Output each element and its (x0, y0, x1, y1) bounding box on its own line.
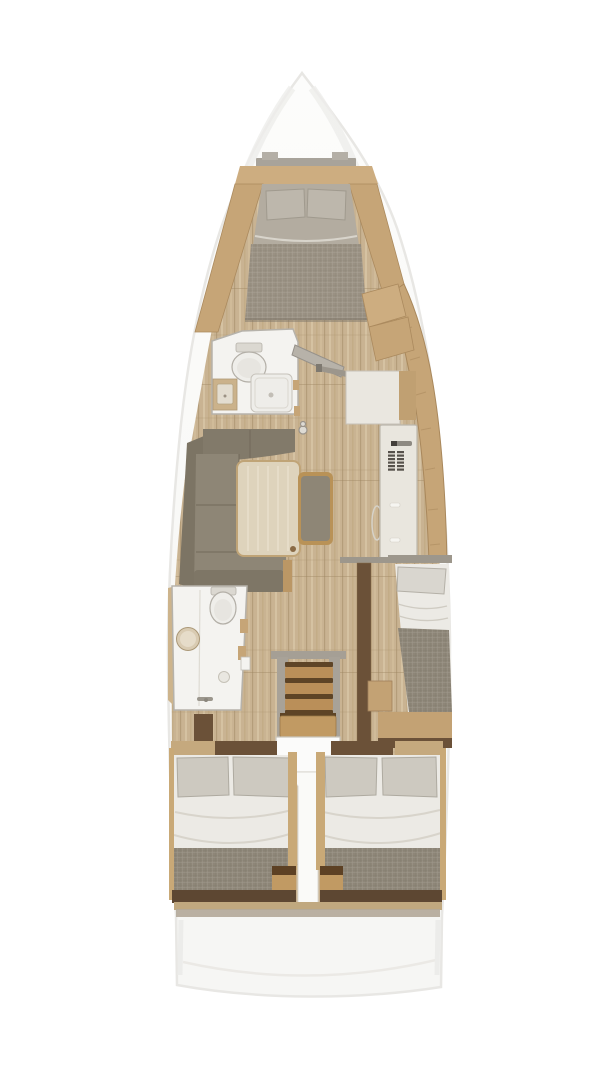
forward-head-door-jamb-2 (294, 406, 300, 416)
port-headboard-band (215, 741, 277, 757)
bow-hatch-tab-port (262, 152, 278, 160)
aft-head (168, 586, 248, 710)
aft-head-faucet-base (204, 698, 208, 702)
starboard-bed-pillow-right (382, 757, 437, 797)
starboard-bed-rail-outboard (440, 748, 446, 900)
stair-steps (285, 662, 333, 715)
starboard-headboard-band (331, 741, 393, 757)
saloon-table-knob (290, 546, 296, 552)
starboard-mid-berth (357, 555, 452, 748)
forward-head-toilet-tank (236, 343, 262, 352)
forward-head-door-jamb-1 (293, 380, 299, 390)
port-bed-pillow-right (233, 757, 292, 797)
saloon-bench-cushion (301, 476, 330, 541)
transom-brown-port (172, 890, 296, 903)
aft-head-door-jamb-1 (240, 619, 248, 633)
mast-fitting-outer (299, 426, 307, 434)
chart-table-side-panel (399, 371, 416, 420)
forward-head-shower-drain (269, 393, 274, 398)
floorplan-canvas (0, 0, 608, 1080)
vberth-pillow-starboard (307, 189, 346, 220)
port-bed-rail-outboard (169, 748, 174, 900)
stern-inner-shadow-starboard (437, 920, 438, 975)
vberth-foot-shadow (245, 318, 367, 322)
chart-table (346, 371, 400, 424)
starboard-cabin-entry-step (368, 681, 392, 711)
port-headboard-wood (171, 741, 215, 757)
bow-hatch-tab-starboard (332, 152, 348, 160)
sofa-aft-wood-cap (283, 560, 292, 592)
starboard-bed-pillow-left (325, 757, 377, 797)
vberth-foot-texture (245, 244, 367, 320)
yacht-floorplan (0, 0, 608, 1080)
port-cabin-door-panel (194, 714, 213, 744)
forward-head-sink (217, 384, 233, 404)
mast-fitting-inner (301, 422, 306, 427)
starboard-cabin-bulkhead (388, 555, 452, 562)
vberth-pillow-port (266, 189, 305, 220)
port-locker-door (241, 657, 250, 670)
starboard-cabin-wall (357, 563, 371, 745)
galley-handrail-end (316, 364, 322, 372)
fridge-slot-1 (390, 503, 400, 507)
starboard-headboard-wood (395, 741, 443, 757)
port-bed-pillow-left (177, 757, 229, 797)
forward-head-sink-drain (224, 395, 227, 398)
stair-platform (280, 716, 336, 737)
aft-head-shower-drain (219, 672, 230, 683)
transom-tan-band (174, 902, 442, 910)
transom-brown-starboard (320, 890, 442, 903)
forward-cabin-rim (235, 166, 378, 184)
stern-step-starboard-top (320, 866, 343, 875)
transom-grey-band (176, 909, 440, 917)
aft-head-toilet-seat (214, 599, 232, 621)
aft-head-sink-basin (180, 631, 196, 647)
fridge-handle-cap (391, 441, 397, 446)
mid-berth-pillow (397, 567, 446, 594)
stern-inner-shadow-port (180, 920, 181, 975)
starboard-bed-rail-inboard (316, 752, 325, 870)
stern-step-port-top (272, 866, 296, 875)
fridge-slot-2 (390, 538, 400, 542)
port-bed-rail-inboard (288, 752, 297, 870)
